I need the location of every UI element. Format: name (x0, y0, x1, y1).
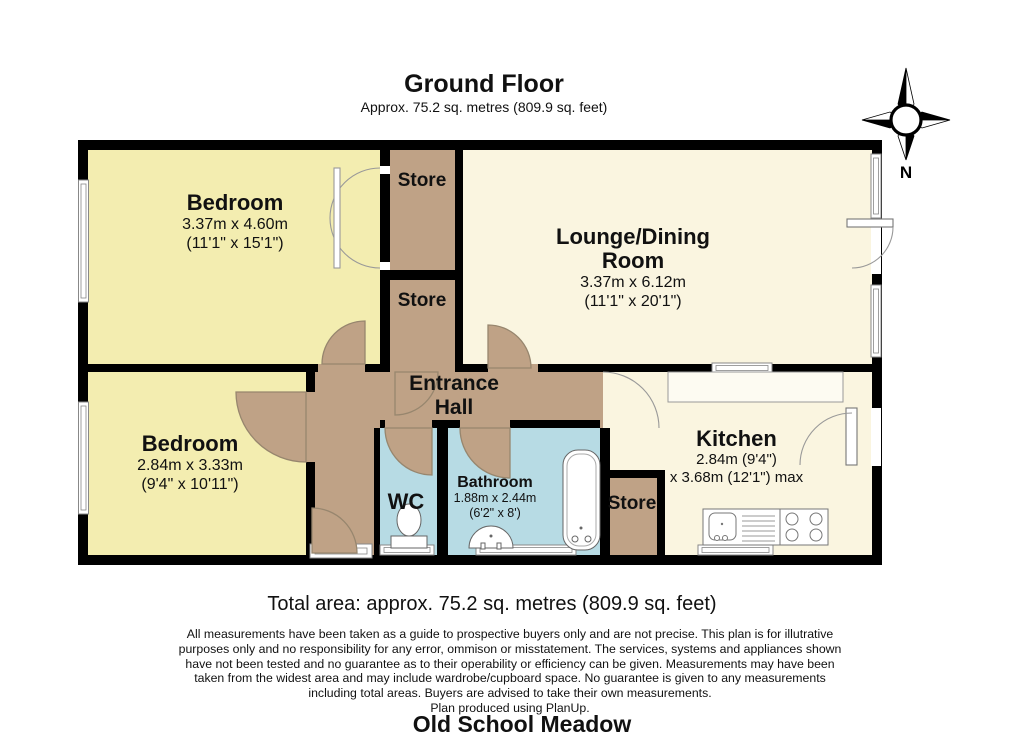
floorplan-page: { "page": { "title": "Ground Floor", "su… (0, 0, 1024, 744)
bathtub-icon (563, 450, 600, 550)
page-title: Ground Floor (284, 70, 684, 99)
patio-door-leaf (847, 219, 893, 227)
room-floors (88, 150, 872, 555)
plan-header: Ground Floor Approx. 75.2 sq. metres (80… (284, 70, 684, 116)
total-area-text: Total area: approx. 75.2 sq. metres (809… (192, 592, 792, 616)
back-door-leaf (846, 408, 857, 465)
compass-north-label: N (900, 163, 912, 182)
cupboard-jamb (380, 262, 390, 270)
room-store-top-floor (390, 150, 455, 270)
compass-circle (891, 105, 921, 135)
cupboard-door-leaf (334, 168, 340, 268)
disclaimer-text: All measurements have been taken as a gu… (110, 627, 910, 716)
property-name: Old School Meadow (322, 711, 722, 737)
hob-icon (780, 509, 828, 545)
room-lounge-floor (463, 150, 872, 364)
back-door-opening (871, 408, 881, 466)
room-store-middle-floor (390, 280, 455, 372)
floorplan-drawing (78, 140, 882, 565)
kitchen-sink-icon (703, 509, 780, 545)
window-bedroom-bottom (79, 402, 89, 514)
patio-door-opening (871, 226, 881, 274)
window-lounge-upper (871, 154, 881, 218)
kitchen-worktop (668, 372, 843, 402)
window-lounge-lower (871, 285, 881, 357)
window-kitchen (698, 545, 773, 555)
cupboard-jamb (380, 166, 390, 174)
window-bedroom-top (79, 180, 89, 302)
page-subtitle: Approx. 75.2 sq. metres (809.9 sq. feet) (284, 99, 684, 116)
room-store-kitchen-floor (610, 478, 657, 555)
